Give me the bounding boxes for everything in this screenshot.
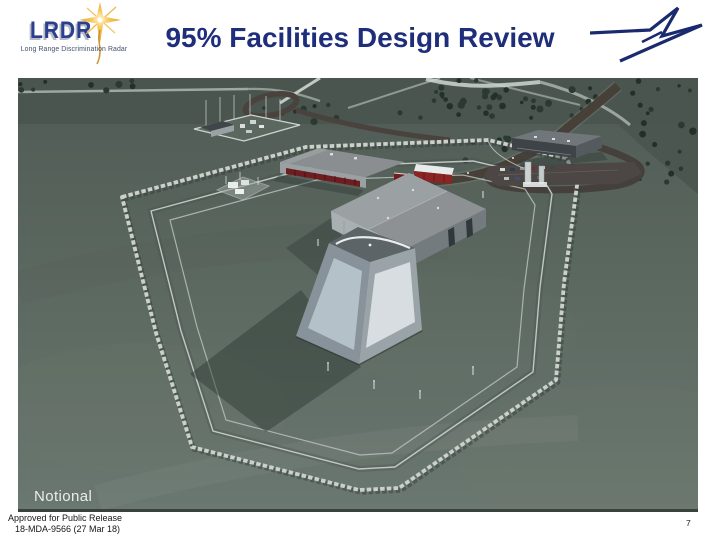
slide: LRDR Long Range Discrimination Radar 95%…	[0, 0, 720, 540]
approval-text: Approved for Public Release 18-MDA-9566 …	[8, 513, 122, 534]
notional-caption: Notional	[34, 488, 92, 505]
parking-lot	[484, 162, 642, 186]
render-scene	[18, 78, 698, 512]
image-bottom-edge	[18, 509, 698, 512]
lockheed-martin-star-icon	[590, 3, 708, 67]
approval-line-2: 18-MDA-9566 (27 Mar 18)	[8, 524, 122, 535]
page-number: 7	[686, 518, 691, 528]
lrdr-tagline: Long Range Discrimination Radar	[8, 46, 140, 53]
starburst-icon	[74, 2, 132, 70]
facility-render: Notional	[18, 78, 698, 512]
approval-line-1: Approved for Public Release	[8, 513, 122, 524]
